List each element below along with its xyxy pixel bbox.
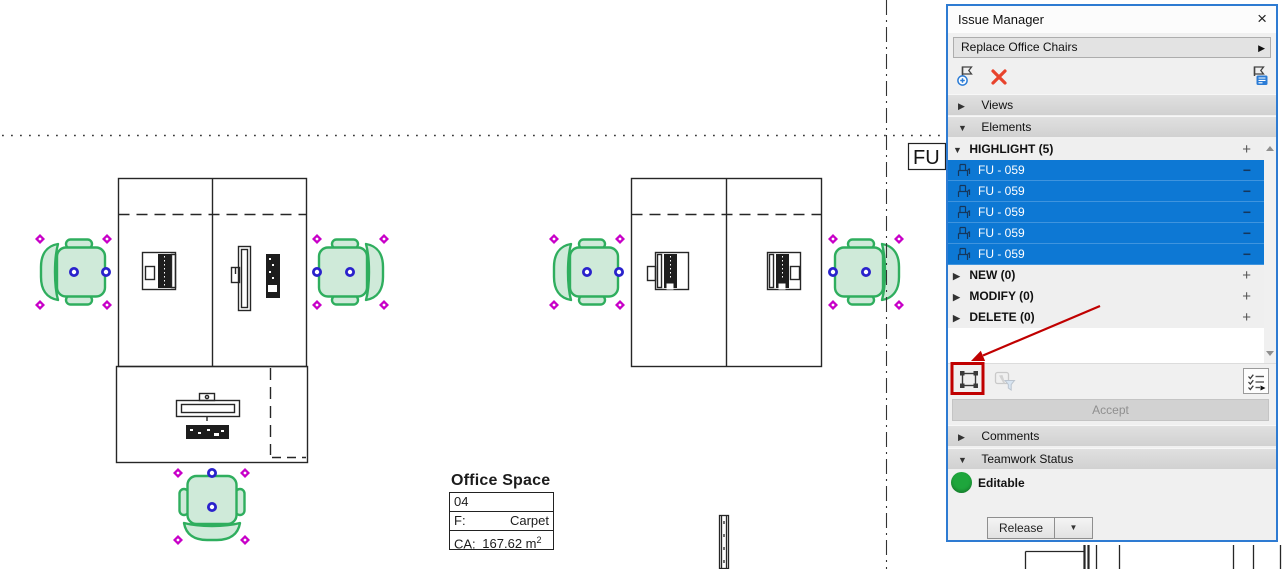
add-to-highlight-button[interactable]: +: [1242, 139, 1251, 160]
chevron-right-icon: ▶: [1258, 39, 1265, 58]
area-exponent: 2: [537, 535, 542, 545]
office-chair-1[interactable]: [35, 234, 112, 310]
element-label: FU - 059: [978, 184, 1025, 198]
flag-plus-icon: [958, 67, 972, 86]
chevron-right-icon: ▶: [958, 96, 971, 117]
room-stamp-title: Office Space: [451, 472, 554, 490]
room-floor-row: F: Carpet: [450, 511, 553, 530]
area-label: CA:: [454, 536, 476, 551]
room-area-row: CA: 167.62 m2: [450, 530, 553, 549]
office-chair-5[interactable]: [828, 234, 904, 310]
section-teamwork-status[interactable]: ▼ Teamwork Status: [948, 448, 1276, 469]
panel-title-bar[interactable]: Issue Manager ×: [948, 6, 1276, 33]
chevron-down-icon: ▼: [958, 118, 971, 139]
red-x-icon: [993, 71, 1005, 83]
elements-list: ▼ HIGHLIGHT (5) + FU - 059 − FU - 059 − …: [948, 139, 1276, 363]
chair-icon: [957, 247, 971, 262]
chevron-down-icon: ▼: [953, 140, 966, 161]
delete-issue-button[interactable]: [989, 67, 1009, 87]
issue-selector[interactable]: Replace Office Chairs ▶: [953, 37, 1271, 58]
remove-element-button[interactable]: −: [1243, 181, 1251, 202]
release-button[interactable]: Release: [987, 517, 1055, 539]
section-comments[interactable]: ▶ Comments: [948, 425, 1276, 446]
room-stamp-box: 04 F: Carpet CA: 167.62 m2: [449, 492, 554, 550]
release-split-button: Release ▼: [987, 517, 1093, 539]
fu-zone-marker[interactable]: FU: [909, 144, 946, 170]
marquee-selection-icon: [960, 371, 978, 388]
editable-status-icon: [951, 472, 972, 493]
list-options-button[interactable]: [1243, 368, 1269, 394]
flag-details-icon: [1255, 67, 1268, 86]
laptop[interactable]: [648, 253, 689, 290]
laptop[interactable]: [768, 253, 801, 290]
room-stamp[interactable]: Office Space 04 F: Carpet CA: 167.62 m2: [449, 472, 554, 550]
chevron-right-icon: ▶: [953, 287, 966, 308]
remove-element-button[interactable]: −: [1243, 160, 1251, 181]
section-views[interactable]: ▶ Views: [948, 94, 1276, 115]
delete-group-row[interactable]: ▶ DELETE (0) +: [948, 307, 1264, 328]
wall-column[interactable]: [720, 516, 729, 569]
fu-zone-label: FU: [913, 147, 940, 169]
application-window: FU Office Space 04 F: Carpet CA: 167.62 …: [0, 0, 1283, 569]
scrollbar[interactable]: [1264, 139, 1276, 363]
release-dropdown-button[interactable]: ▼: [1054, 517, 1093, 539]
issue-details-button[interactable]: [1248, 64, 1270, 87]
remove-element-button[interactable]: −: [1243, 223, 1251, 244]
new-group-label: NEW (0): [969, 268, 1015, 282]
editable-status-label: Editable: [978, 476, 1025, 490]
issue-manager-panel: Issue Manager × Replace Office Chairs ▶: [946, 4, 1278, 542]
select-by-criteria-button-disabled[interactable]: [993, 370, 1019, 394]
element-row[interactable]: FU - 059 −: [948, 160, 1264, 181]
office-chair-4[interactable]: [549, 234, 625, 310]
scroll-up-icon[interactable]: [1266, 146, 1274, 151]
office-chair-2[interactable]: [312, 234, 389, 310]
element-label: FU - 059: [978, 163, 1025, 177]
new-group-row[interactable]: ▶ NEW (0) +: [948, 265, 1264, 286]
chair-icon: [957, 226, 971, 241]
delete-group-label: DELETE (0): [969, 310, 1034, 324]
monitor-keyboard[interactable]: [232, 247, 281, 311]
chair-icon: [957, 205, 971, 220]
chair-icon: [957, 163, 971, 178]
chevron-down-icon: ▼: [1070, 523, 1078, 532]
element-label: FU - 059: [978, 205, 1025, 219]
section-comments-label: Comments: [981, 429, 1039, 443]
remove-element-button[interactable]: −: [1243, 244, 1251, 265]
desk-group-2[interactable]: [632, 179, 822, 367]
checklist-arrow-icon: [1247, 372, 1267, 392]
new-issue-button[interactable]: [956, 64, 978, 87]
chevron-down-icon: ▼: [958, 450, 971, 471]
add-to-modify-button[interactable]: +: [1242, 286, 1251, 307]
section-elements[interactable]: ▼ Elements: [948, 116, 1276, 137]
marquee-select-button[interactable]: [959, 370, 979, 389]
remove-element-button[interactable]: −: [1243, 202, 1251, 223]
element-row[interactable]: FU - 059 −: [948, 223, 1264, 244]
element-label: FU - 059: [978, 247, 1025, 261]
highlight-group-row[interactable]: ▼ HIGHLIGHT (5) +: [948, 139, 1264, 160]
element-label: FU - 059: [978, 226, 1025, 240]
laptop[interactable]: [143, 253, 176, 290]
accept-button[interactable]: Accept: [952, 399, 1269, 421]
room-number: 04: [450, 493, 553, 511]
chevron-right-icon: ▶: [958, 427, 971, 448]
section-views-label: Views: [981, 98, 1013, 112]
highlight-group-label: HIGHLIGHT (5): [969, 142, 1053, 156]
section-elements-label: Elements: [981, 120, 1031, 134]
add-to-new-button[interactable]: +: [1242, 265, 1251, 286]
modify-group-row[interactable]: ▶ MODIFY (0) +: [948, 286, 1264, 307]
printer-monitor[interactable]: [177, 394, 240, 440]
element-row[interactable]: FU - 059 −: [948, 181, 1264, 202]
modify-group-label: MODIFY (0): [969, 289, 1033, 303]
cursor-funnel-icon: [996, 373, 1015, 391]
element-row[interactable]: FU - 059 −: [948, 202, 1264, 223]
element-row[interactable]: FU - 059 −: [948, 244, 1264, 265]
chevron-right-icon: ▶: [953, 266, 966, 287]
issue-selector-value: Replace Office Chairs: [961, 40, 1078, 54]
floor-value: Carpet: [510, 512, 549, 530]
office-chair-3[interactable]: [173, 468, 250, 545]
add-to-delete-button[interactable]: +: [1242, 307, 1251, 328]
area-value: 167.62 m: [482, 536, 536, 551]
chair-icon: [957, 184, 971, 199]
panel-title: Issue Manager: [958, 12, 1044, 27]
section-teamwork-label: Teamwork Status: [981, 452, 1073, 466]
desk-group-1[interactable]: [117, 179, 308, 463]
scroll-down-icon[interactable]: [1266, 351, 1274, 356]
floor-label: F:: [454, 512, 466, 530]
close-icon[interactable]: ×: [1257, 8, 1267, 30]
chevron-right-icon: ▶: [953, 308, 966, 329]
wall-fragments: [1026, 545, 1281, 569]
